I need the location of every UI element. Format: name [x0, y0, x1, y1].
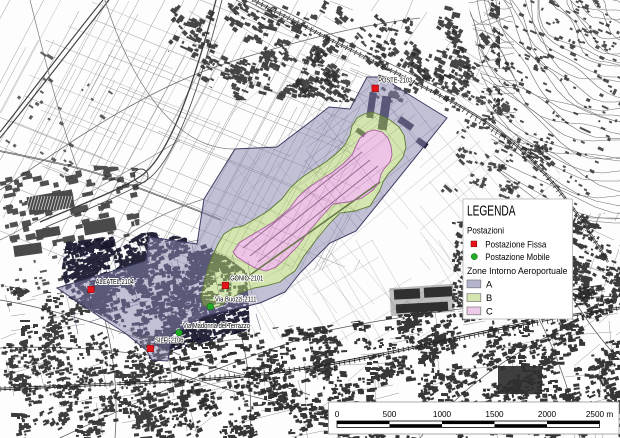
svg-text:Via Madonna del Terrazzo: Via Madonna del Terrazzo	[183, 321, 250, 330]
svg-text:GONIO-2101: GONIO-2101	[230, 273, 263, 282]
svg-text:C: C	[486, 305, 493, 316]
svg-text:500: 500	[383, 410, 397, 419]
svg-text:Postazioni: Postazioni	[467, 225, 504, 236]
svg-text:1500: 1500	[485, 410, 504, 419]
svg-text:1000: 1000	[433, 410, 452, 419]
svg-text:Zone Intorno Aeroportuale: Zone Intorno Aeroportuale	[467, 265, 568, 276]
svg-text:B: B	[486, 292, 492, 303]
svg-text:Via Buozzi-2111: Via Buozzi-2111	[215, 294, 257, 303]
svg-text:Postazione Fissa: Postazione Fissa	[485, 238, 547, 249]
svg-text:2500 m: 2500 m	[586, 410, 613, 419]
svg-text:2000: 2000	[538, 410, 557, 419]
svg-text:A: A	[486, 278, 493, 289]
svg-text:Postazione Mobile: Postazione Mobile	[485, 251, 550, 262]
svg-text:ALCATEL-2104: ALCATEL-2104	[96, 277, 134, 286]
svg-text:SILFI-2106: SILFI-2106	[155, 336, 184, 345]
svg-text:0: 0	[335, 410, 340, 419]
svg-text:LEGENDA: LEGENDA	[467, 204, 516, 220]
svg-text:POSTE-2103: POSTE-2103	[378, 76, 412, 85]
